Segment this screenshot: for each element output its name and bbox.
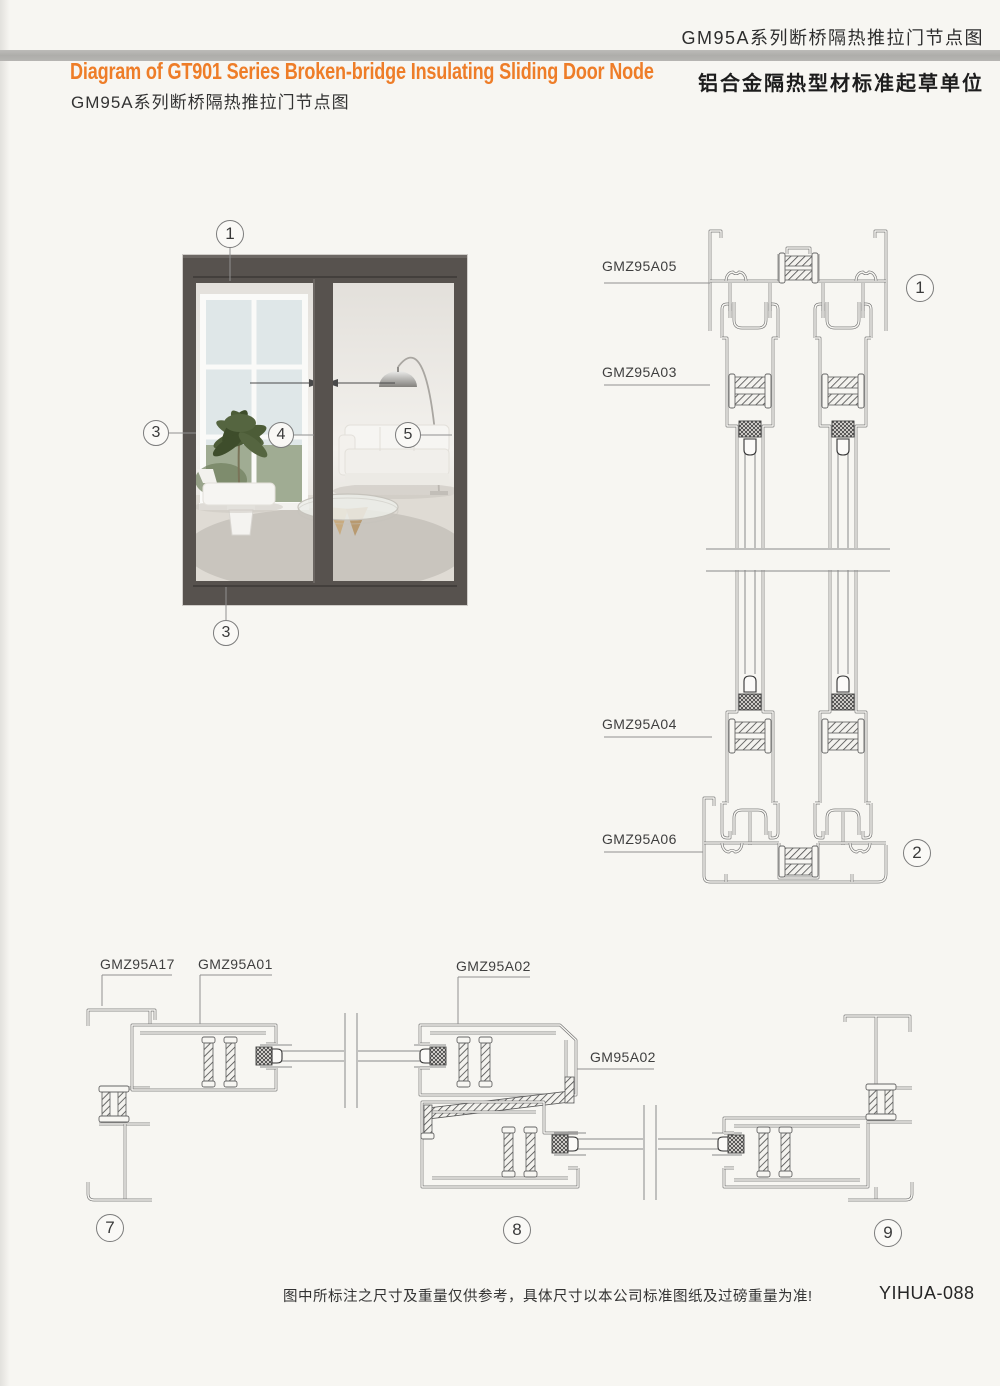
callout-section-head: 1 — [906, 274, 934, 302]
callout-plan-left: 7 — [96, 1214, 124, 1242]
callout-plan-right: 9 — [874, 1219, 902, 1247]
callout-photo-center: 4 — [268, 422, 294, 448]
horizontal-section-drawing — [88, 1010, 912, 1200]
page-subtitle-cn: GM95A系列断桥隔热推拉门节点图 — [71, 88, 350, 113]
part-label-gmz95a05: GMZ95A05 — [602, 258, 677, 274]
catalog-page: GM95A系列断桥隔热推拉门节点图 铝合金隔热型材标准起草单位 Diagram … — [0, 0, 1000, 1386]
callout-photo-left: 3 — [143, 420, 169, 446]
callout-photo-bottom: 3 — [213, 620, 239, 646]
footer-disclaimer: 图中所标注之尺寸及重量仅供参考，具体尺寸以本公司标准图纸及过磅重量为准! — [283, 1285, 813, 1306]
part-label-gmz95a03: GMZ95A03 — [602, 364, 677, 380]
technical-linework — [0, 0, 1000, 1386]
part-label-gmz95a06: GMZ95A06 — [602, 831, 677, 847]
footer-page-code: YIHUA-088 — [879, 1283, 975, 1304]
door-photo — [183, 255, 467, 605]
part-label-gmz95a04: GMZ95A04 — [602, 716, 677, 732]
part-label-gmz95a17: GMZ95A17 — [100, 956, 175, 972]
vertical-section-drawing — [704, 231, 890, 882]
page-title: Diagram of GT901 Series Broken-bridge In… — [70, 59, 654, 86]
callout-photo-right: 5 — [395, 422, 421, 448]
callout-section-sill: 2 — [903, 839, 931, 867]
door-stile — [313, 279, 333, 583]
callout-plan-center: 8 — [503, 1216, 531, 1244]
org-line-cn: 铝合金隔热型材标准起草单位 — [698, 67, 984, 96]
doc-title-cn: GM95A系列断桥隔热推拉门节点图 — [681, 24, 984, 50]
callout-photo-top: 1 — [216, 220, 244, 248]
part-label-gmz95a02: GMZ95A02 — [456, 958, 531, 974]
part-label-gm95a02: GM95A02 — [590, 1049, 656, 1065]
part-label-gmz95a01: GMZ95A01 — [198, 956, 273, 972]
